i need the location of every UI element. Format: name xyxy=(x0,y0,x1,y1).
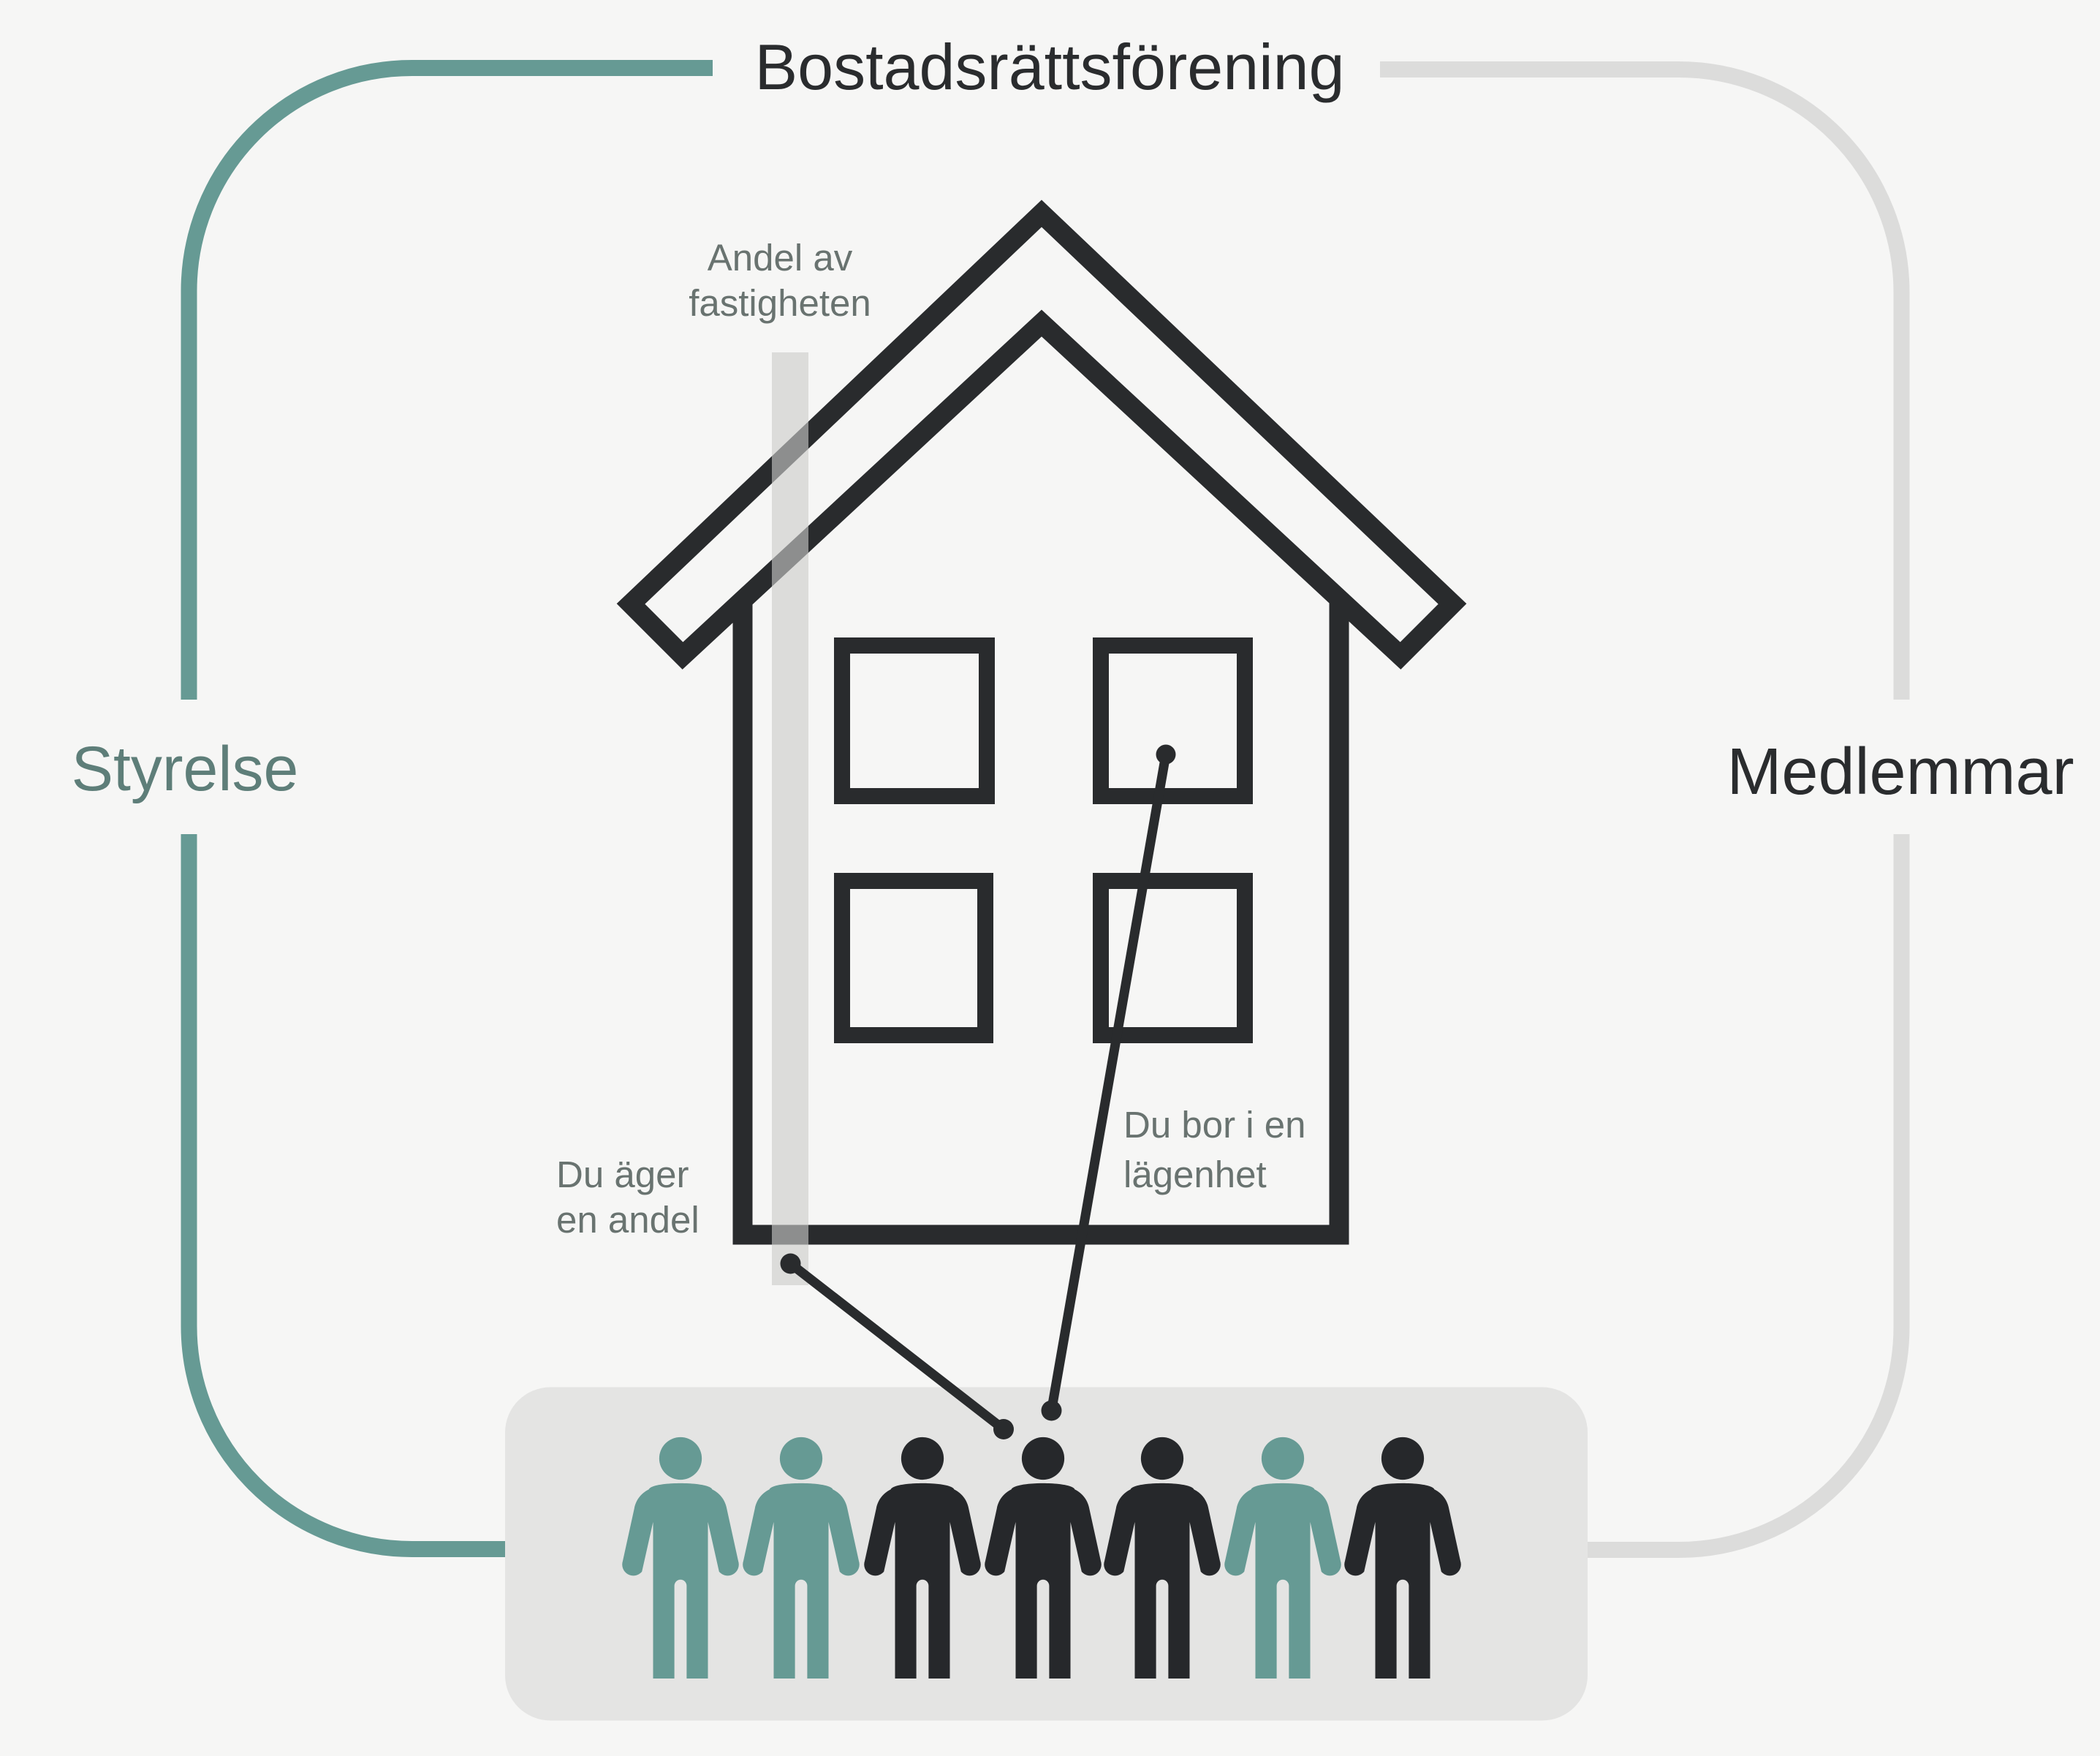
svg-text:fastigheten: fastigheten xyxy=(689,282,871,324)
svg-text:Du bor i en: Du bor i en xyxy=(1123,1104,1305,1146)
svg-text:Bostadsrättsförening: Bostadsrättsförening xyxy=(754,31,1344,103)
svg-text:Styrelse: Styrelse xyxy=(72,734,299,804)
svg-text:Andel av: Andel av xyxy=(708,237,853,279)
svg-text:Medlemmar: Medlemmar xyxy=(1726,735,2074,809)
svg-text:Du äger: Du äger xyxy=(556,1154,689,1195)
svg-text:lägenhet: lägenhet xyxy=(1123,1154,1267,1195)
svg-text:en andel: en andel xyxy=(556,1199,700,1241)
